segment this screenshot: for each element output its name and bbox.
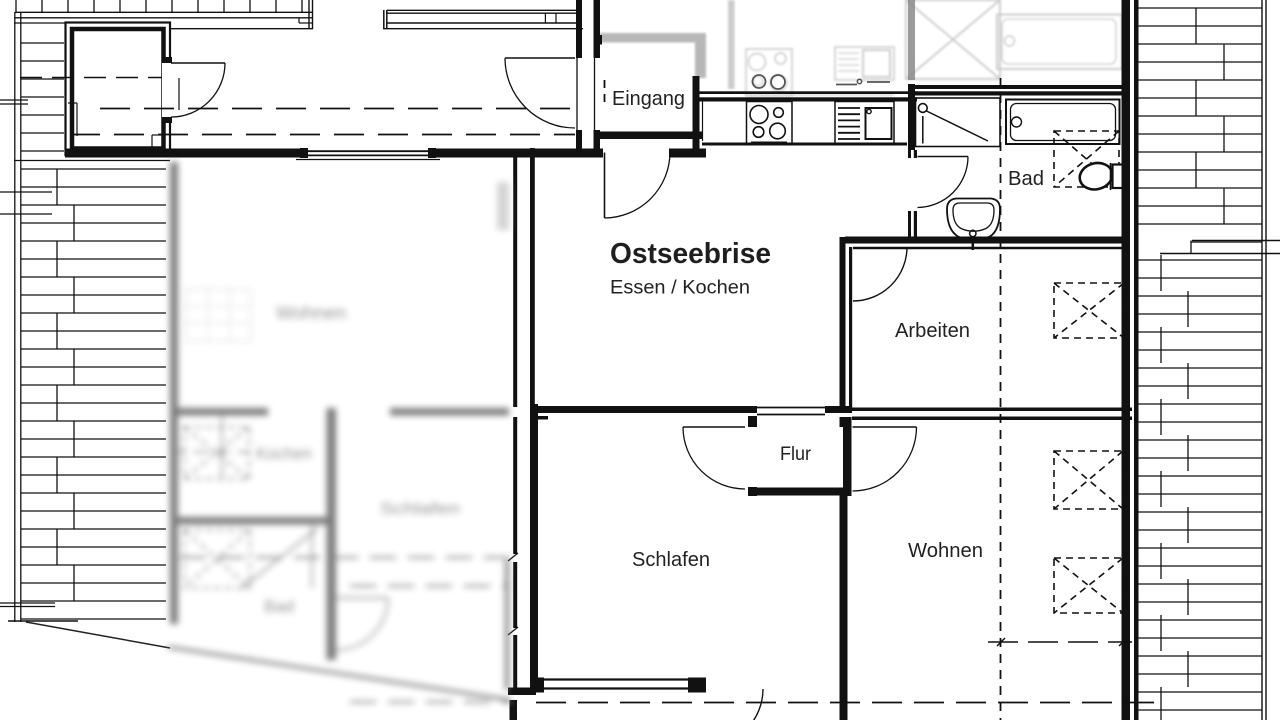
svg-text:Wohnen: Wohnen (908, 539, 983, 562)
svg-text:Bad: Bad (264, 598, 294, 616)
svg-text:Arbeiten: Arbeiten (895, 319, 970, 342)
svg-text:Schlafen: Schlafen (380, 499, 460, 518)
svg-text:Schlafen: Schlafen (632, 548, 710, 571)
svg-text:Bad: Bad (1008, 167, 1044, 190)
svg-text:Essen / Kochen: Essen / Kochen (610, 277, 750, 299)
svg-text:Ostseebrise: Ostseebrise (610, 238, 771, 270)
svg-text:Flur: Flur (780, 443, 811, 465)
svg-text:Kochen: Kochen (256, 445, 312, 463)
svg-text:Eingang: Eingang (612, 87, 685, 110)
svg-text:Wohnen: Wohnen (276, 302, 346, 323)
